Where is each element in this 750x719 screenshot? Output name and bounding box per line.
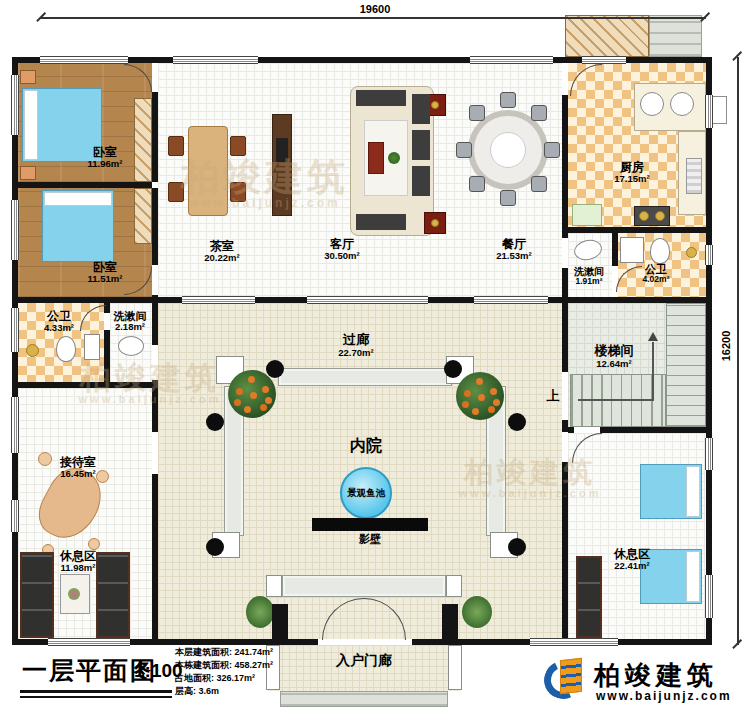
chair	[230, 136, 246, 156]
wall	[562, 57, 568, 62]
window	[582, 56, 626, 64]
kitchen-sink	[640, 92, 664, 116]
room-label-entry-porch: 入户门廊	[330, 653, 398, 669]
room-label-living: 客厅 30.50m²	[306, 238, 378, 262]
tv-console	[272, 114, 292, 216]
company-url: www.baijunjz.com	[596, 689, 732, 703]
chair	[469, 176, 485, 192]
porch-beam	[282, 575, 446, 597]
window	[470, 56, 553, 64]
chair	[544, 142, 560, 158]
potted-tree	[456, 372, 504, 420]
wall	[428, 297, 474, 303]
stair-guide-line	[652, 342, 654, 400]
right-dimension-line	[737, 57, 739, 645]
column-base	[446, 575, 462, 597]
chair	[230, 182, 246, 202]
top-dimension-line	[40, 17, 706, 19]
bidet	[84, 334, 100, 360]
window	[11, 500, 19, 532]
window	[182, 296, 255, 304]
window	[705, 95, 713, 128]
kitchen-sink	[670, 92, 694, 116]
sofa-cushion	[412, 166, 430, 196]
title-underline	[20, 696, 172, 698]
room-label-bath-right: 公卫 4.02m²	[630, 263, 682, 285]
window	[705, 438, 713, 470]
accent-table	[368, 142, 384, 174]
burner	[655, 211, 665, 221]
mat-lamp	[431, 219, 439, 227]
nightstand	[20, 166, 36, 180]
room-label-reception: 接待室 16.45m²	[42, 456, 114, 480]
window	[11, 397, 19, 453]
stair-flight	[666, 303, 706, 427]
sink	[118, 336, 144, 356]
sofa-cushion	[412, 130, 430, 160]
floor-drain	[686, 247, 697, 258]
window	[40, 56, 128, 64]
company-name: 柏竣建筑	[594, 658, 718, 693]
wall	[612, 233, 618, 266]
chair	[531, 105, 547, 121]
room-label-wash-right: 洗漱间 1.91m²	[564, 266, 614, 287]
window	[705, 245, 713, 265]
sofa-cushion	[356, 214, 406, 230]
wall	[152, 474, 158, 645]
top-dimension-label: 19600	[343, 3, 407, 15]
wall	[412, 639, 442, 645]
sofa-cushion	[412, 94, 430, 124]
burner	[639, 211, 649, 221]
window	[11, 200, 19, 260]
column-base	[448, 645, 462, 690]
chair	[456, 142, 472, 158]
stat-line: 占地面积: 326.17m²	[175, 672, 335, 685]
right-dimension-label: 16200	[720, 316, 732, 376]
wall	[288, 639, 318, 645]
plant	[246, 596, 274, 628]
room-label-bedroom1: 卧室 11.96m²	[70, 146, 140, 170]
porch-pier	[272, 604, 288, 645]
room-label-screen-wall: 影壁	[334, 533, 406, 545]
stat-line: 本栋建筑面积: 458.27m²	[175, 659, 335, 672]
chair	[168, 182, 184, 202]
floor-drain	[26, 344, 39, 357]
room-label-kitchen: 厨房 17.15m²	[598, 161, 666, 185]
logo-building	[560, 658, 582, 694]
bed	[42, 190, 114, 262]
column	[206, 413, 224, 431]
room-label-stairwell: 楼梯间 12.64m²	[578, 344, 650, 369]
washer	[620, 237, 644, 263]
wall	[706, 57, 712, 645]
window	[11, 75, 19, 135]
room-label-rest-right: 休息区 22.41m²	[596, 548, 668, 572]
wardrobe	[134, 188, 152, 244]
wall	[152, 92, 158, 182]
cutting-board	[572, 204, 602, 226]
screen-wall	[312, 518, 428, 531]
wall	[255, 297, 307, 303]
chair	[500, 190, 516, 206]
title-underline	[20, 690, 172, 693]
column	[206, 538, 224, 556]
potted-tree	[228, 370, 276, 418]
tv-screen	[276, 138, 288, 162]
column	[444, 360, 462, 378]
column	[508, 538, 526, 556]
company-logo-icon	[544, 655, 590, 705]
mat-lamp	[431, 101, 439, 109]
chair	[469, 105, 485, 121]
window	[11, 308, 19, 352]
ac-unit	[712, 96, 727, 124]
floor-plan-canvas: 19600 16200	[0, 0, 750, 719]
stat-line: 层高: 3.6m	[175, 685, 335, 698]
fish-pond-label: 景观鱼池	[347, 487, 385, 500]
column	[508, 413, 526, 431]
wall	[12, 382, 158, 388]
wall	[600, 427, 706, 433]
wall	[568, 297, 706, 303]
room-label-wash-left: 洗漱间 2.18m²	[104, 310, 156, 333]
stairs-up-label: 上	[544, 389, 562, 404]
wall	[152, 297, 182, 303]
colonnade-beam-top	[278, 368, 452, 386]
wall	[104, 330, 110, 382]
stat-line: 本层建筑面积: 241.74m²	[175, 646, 335, 659]
window	[530, 638, 618, 646]
dish-rack	[686, 158, 702, 194]
toilet	[650, 238, 670, 264]
column-base	[266, 575, 282, 597]
wall	[12, 297, 152, 303]
plant-pot	[388, 152, 400, 164]
chair	[531, 176, 547, 192]
stair-up-arrow	[648, 332, 658, 341]
room-label-bath-left: 公卫 4.33m²	[28, 310, 90, 334]
porch-pier	[442, 604, 458, 645]
balcony-steps	[649, 15, 702, 57]
wall	[562, 95, 568, 238]
wall	[152, 57, 158, 62]
dining-table-center	[490, 132, 526, 168]
column	[266, 360, 284, 378]
toilet	[56, 336, 76, 362]
chair	[500, 92, 516, 108]
wall	[12, 182, 152, 188]
fish-pond: 景观鱼池	[340, 467, 392, 519]
table-flowers	[68, 588, 80, 600]
bed	[640, 464, 702, 519]
room-label-rest-left: 休息区 11.98m²	[42, 550, 114, 574]
wall	[568, 227, 706, 233]
tea-table	[188, 126, 228, 216]
room-label-dining: 餐厅 21.53m²	[478, 238, 550, 262]
window	[705, 575, 713, 618]
chair	[168, 136, 184, 156]
stair-guide-line	[578, 399, 654, 401]
window	[307, 296, 428, 304]
plant	[462, 596, 492, 628]
room-label-tea-room: 茶室 20.22m²	[186, 240, 258, 264]
window	[474, 296, 548, 304]
wall	[568, 427, 574, 433]
kitchen-balcony	[565, 15, 649, 57]
room-label-bedroom2: 卧室 11.51m²	[70, 261, 140, 285]
room-label-corridor: 过廊 22.70m²	[320, 333, 392, 358]
window	[173, 56, 258, 64]
room-label-courtyard: 内院	[336, 437, 396, 455]
window	[48, 638, 130, 646]
nightstand	[20, 70, 36, 84]
wall	[152, 188, 158, 265]
wall	[562, 462, 568, 645]
sofa-cushion	[356, 90, 406, 106]
area-statistics: 本层建筑面积: 241.74m² 本栋建筑面积: 458.27m² 占地面积: …	[175, 646, 335, 698]
